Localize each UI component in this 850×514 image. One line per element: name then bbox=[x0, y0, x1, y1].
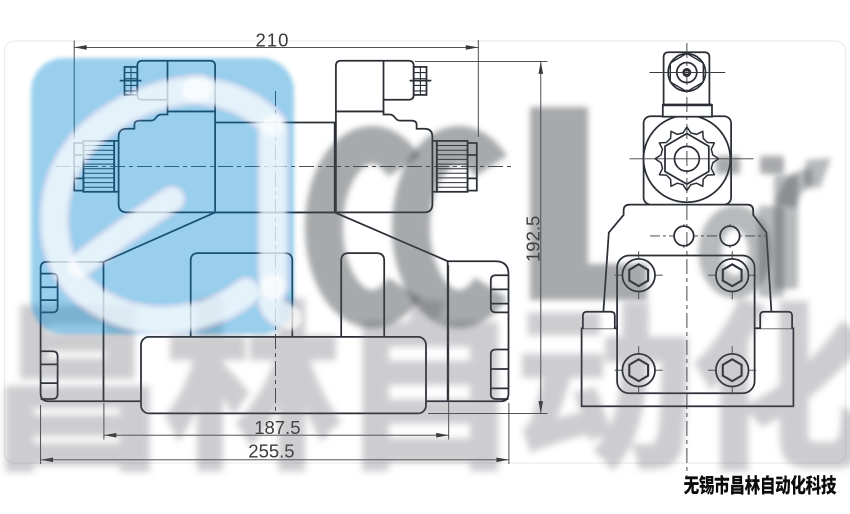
svg-text:210: 210 bbox=[256, 30, 290, 51]
